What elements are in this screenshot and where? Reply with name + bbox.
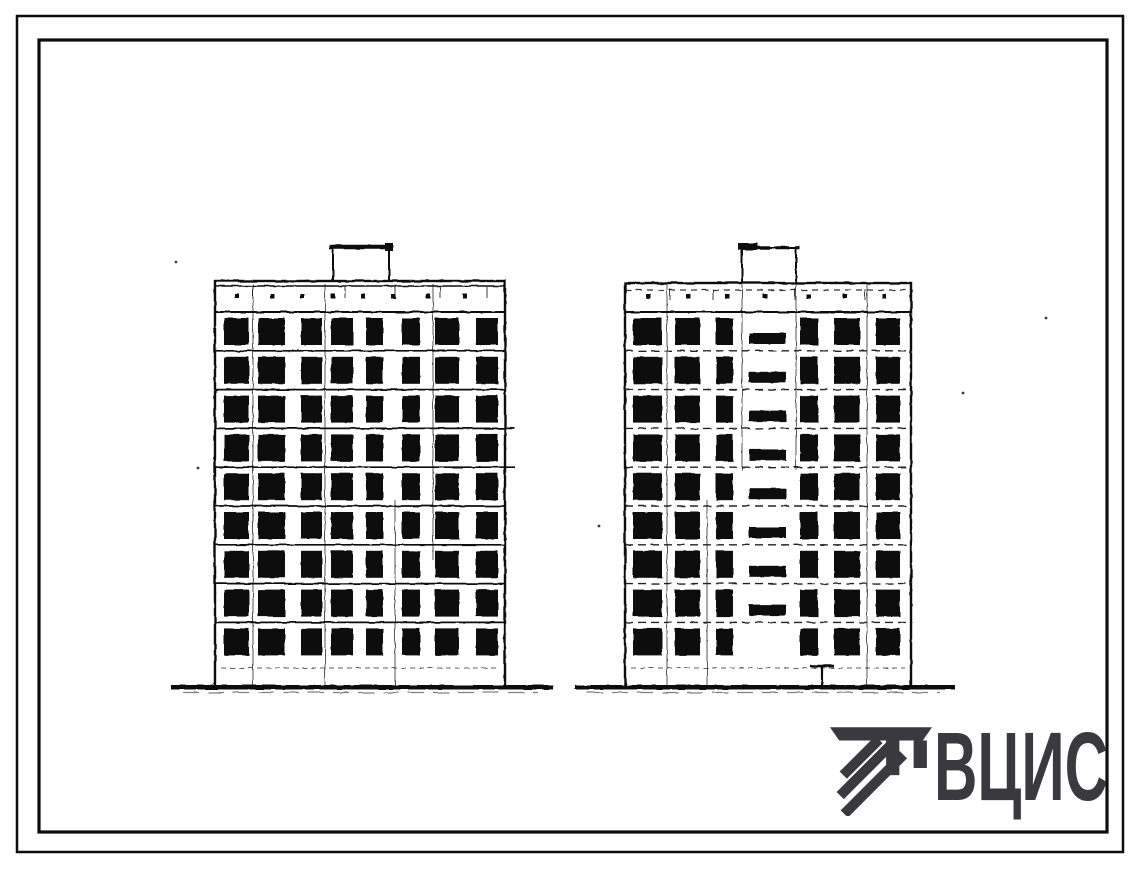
window [224,473,249,500]
window [435,434,459,461]
window [301,628,322,655]
window [224,628,249,655]
stair-window [749,605,786,616]
scan-speck [175,261,178,264]
window [366,551,383,578]
window [800,357,818,384]
vent-dot [270,294,275,299]
window [633,512,662,539]
window [258,357,285,384]
window [402,318,420,345]
window [834,590,860,617]
window [633,551,662,578]
stair-window [749,488,786,499]
stair-window [749,411,786,422]
window [716,551,733,578]
roof-box-blob [385,243,393,251]
window [366,473,383,500]
window [633,318,662,345]
window [402,628,420,655]
window [331,434,353,461]
window [402,551,420,578]
window [258,473,285,500]
window [366,396,383,423]
window [301,551,322,578]
window [224,357,249,384]
vent-dot [843,294,848,299]
window [224,318,249,345]
stair-window [749,566,786,577]
window [301,318,322,345]
window [476,473,498,500]
window [675,318,700,345]
ground-line [171,685,553,690]
window [435,473,459,500]
window [800,590,818,617]
window [633,473,662,500]
window [366,590,383,617]
window [633,396,662,423]
window [476,318,498,345]
window [366,357,383,384]
vent-dot [426,294,431,299]
window [331,628,353,655]
drawing-sheet: ВЦИС [0,0,1139,869]
window [301,512,322,539]
window [800,551,818,578]
window [301,357,322,384]
window [834,512,860,539]
window [435,590,459,617]
window [716,434,733,461]
window [876,318,900,345]
window [633,434,662,461]
window [258,434,285,461]
window [834,318,860,345]
window [301,396,322,423]
window [834,357,860,384]
window [402,473,420,500]
window [224,512,249,539]
window [435,628,459,655]
logo-text: ВЦИС [934,718,1108,815]
window [876,628,900,655]
window [224,590,249,617]
window [402,590,420,617]
stair-window [749,527,786,538]
window [301,590,322,617]
window [402,434,420,461]
window [476,628,498,655]
window [675,512,700,539]
window [716,628,733,655]
window [258,551,285,578]
window [476,434,498,461]
window [716,396,733,423]
vcis-hatched-column-icon [830,718,932,816]
window [876,357,900,384]
window [800,434,818,461]
window [476,357,498,384]
window [402,512,420,539]
window [633,357,662,384]
window [435,357,459,384]
vent-dot [806,294,811,299]
window [366,628,383,655]
window [435,396,459,423]
window [331,357,353,384]
roof-box-blob [738,243,758,250]
vent-dot [725,294,730,299]
window [224,551,249,578]
window [834,473,860,500]
window [675,628,700,655]
vcis-logo: ВЦИС [830,718,1139,816]
scan-speck [1045,317,1048,320]
vent-dot [686,294,691,299]
window [224,396,249,423]
window [633,628,662,655]
window [876,512,900,539]
window [402,396,420,423]
window [675,590,700,617]
stair-window [749,449,786,460]
window [476,551,498,578]
window [800,512,818,539]
window [876,551,900,578]
scan-speck [598,525,601,528]
window [258,396,285,423]
window [834,551,860,578]
window [476,396,498,423]
elevation-right [575,243,955,693]
window [675,551,700,578]
window [675,396,700,423]
window [476,590,498,617]
vent-dot [300,294,305,299]
window [258,512,285,539]
scan-speck [962,392,965,395]
elevation-left [171,243,553,693]
window [402,357,420,384]
window [435,512,459,539]
window [258,318,285,345]
window [331,318,353,345]
window [366,434,383,461]
window [224,434,249,461]
window [876,396,900,423]
roof-box [333,247,389,285]
window [716,318,733,345]
window [258,590,285,617]
roof-box [742,248,796,287]
window [716,512,733,539]
window [716,590,733,617]
window [301,473,322,500]
window [675,434,700,461]
window [366,512,383,539]
stair-window [749,372,786,383]
window [800,628,818,655]
window [331,512,353,539]
window [716,357,733,384]
window [331,590,353,617]
window [800,396,818,423]
vent-dot [361,294,366,299]
vent-dot [331,294,336,299]
vent-dot [235,294,240,299]
window [435,318,459,345]
window [876,473,900,500]
window [834,396,860,423]
window [834,628,860,655]
window [331,551,353,578]
window [331,396,353,423]
window [800,473,818,500]
window [633,590,662,617]
vent-dot [882,294,887,299]
window [675,473,700,500]
window [476,512,498,539]
window [876,434,900,461]
window [435,551,459,578]
window [834,434,860,461]
vent-dot [646,294,651,299]
window [258,628,285,655]
stair-window [749,333,786,344]
window [301,434,322,461]
window [675,357,700,384]
ground-line [575,685,955,690]
window [366,318,383,345]
window [331,473,353,500]
window [800,318,818,345]
window [716,473,733,500]
window [876,590,900,617]
scan-speck [197,467,200,470]
vent-dot [463,294,468,299]
vent-dot [763,294,768,299]
